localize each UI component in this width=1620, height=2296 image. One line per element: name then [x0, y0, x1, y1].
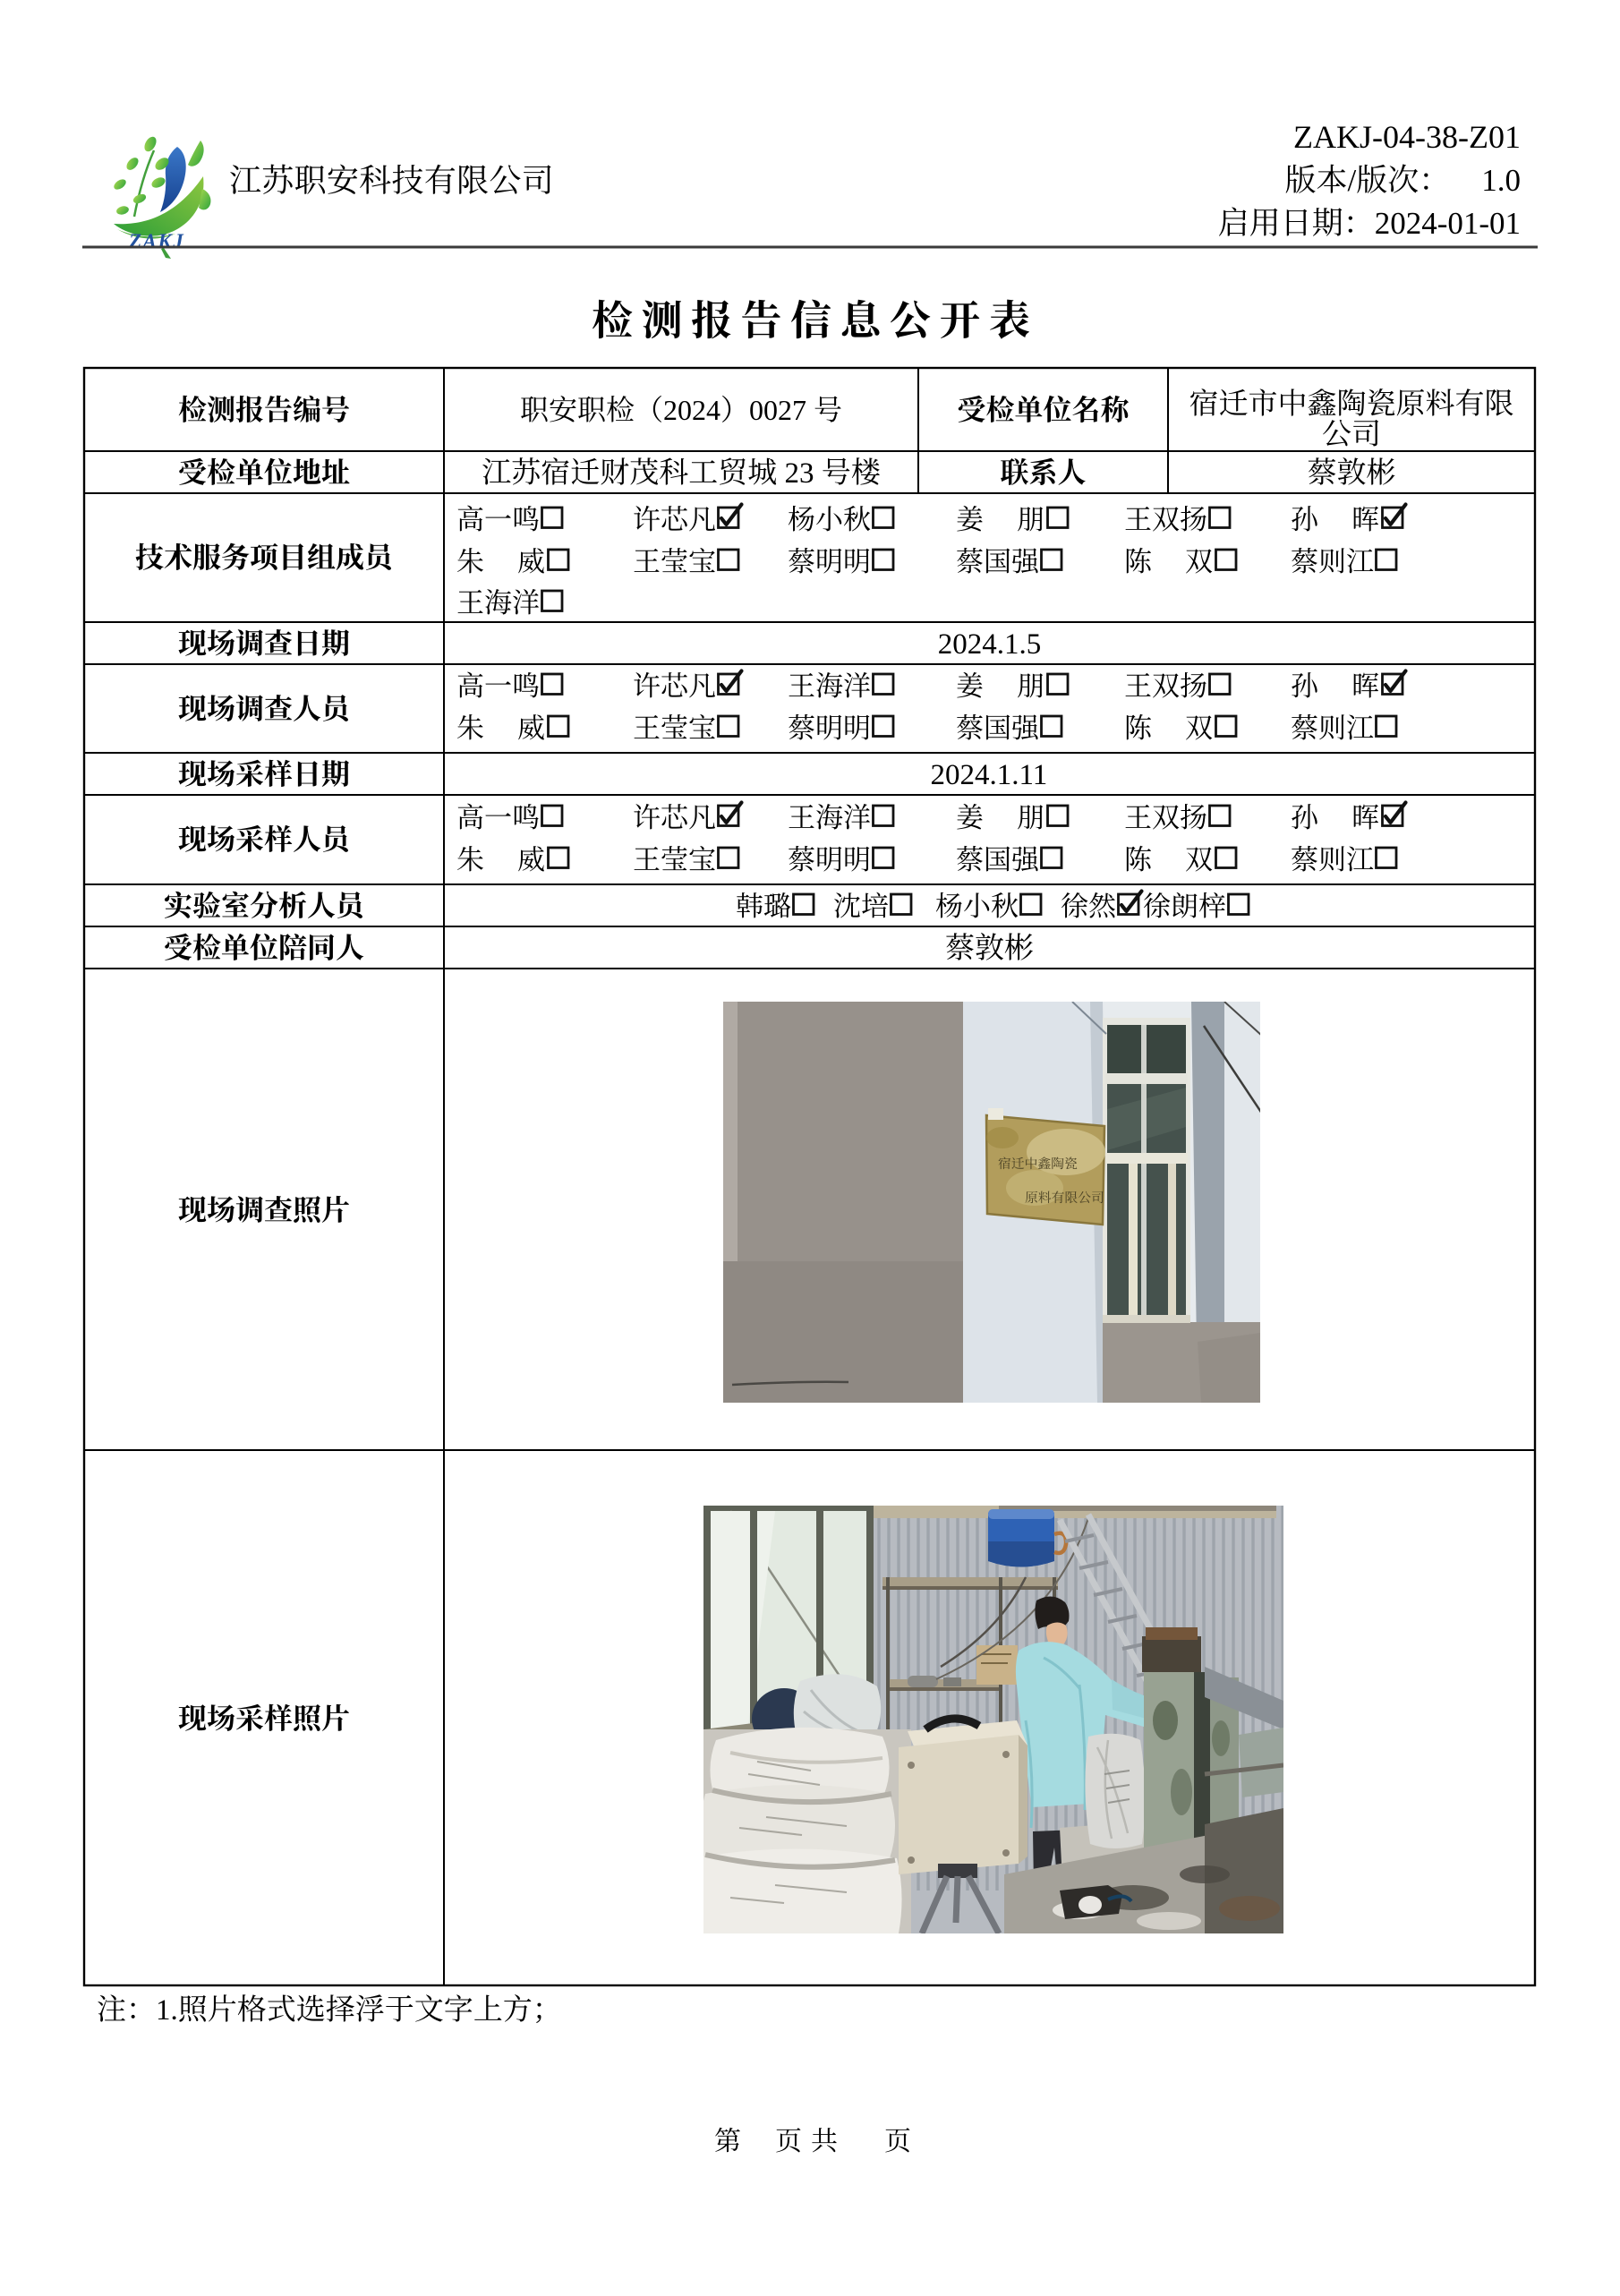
svg-text:1.: 1. [156, 1994, 178, 2027]
svg-text:2024: 2024 [663, 394, 720, 426]
svg-text:/: / [1348, 163, 1357, 198]
svg-text:2024.1.11: 2024.1.11 [931, 759, 1048, 791]
svg-text:ZAKJ-04-38-Z01: ZAKJ-04-38-Z01 [1293, 119, 1521, 155]
svg-text:0027: 0027 [749, 394, 806, 426]
svg-text:ZAKJ: ZAKJ [128, 230, 184, 252]
svg-text:2024.1.5: 2024.1.5 [938, 628, 1042, 661]
svg-text:2024-01-01: 2024-01-01 [1375, 206, 1521, 241]
svg-text:23: 23 [785, 457, 814, 490]
svg-text:1.0: 1.0 [1481, 163, 1521, 198]
